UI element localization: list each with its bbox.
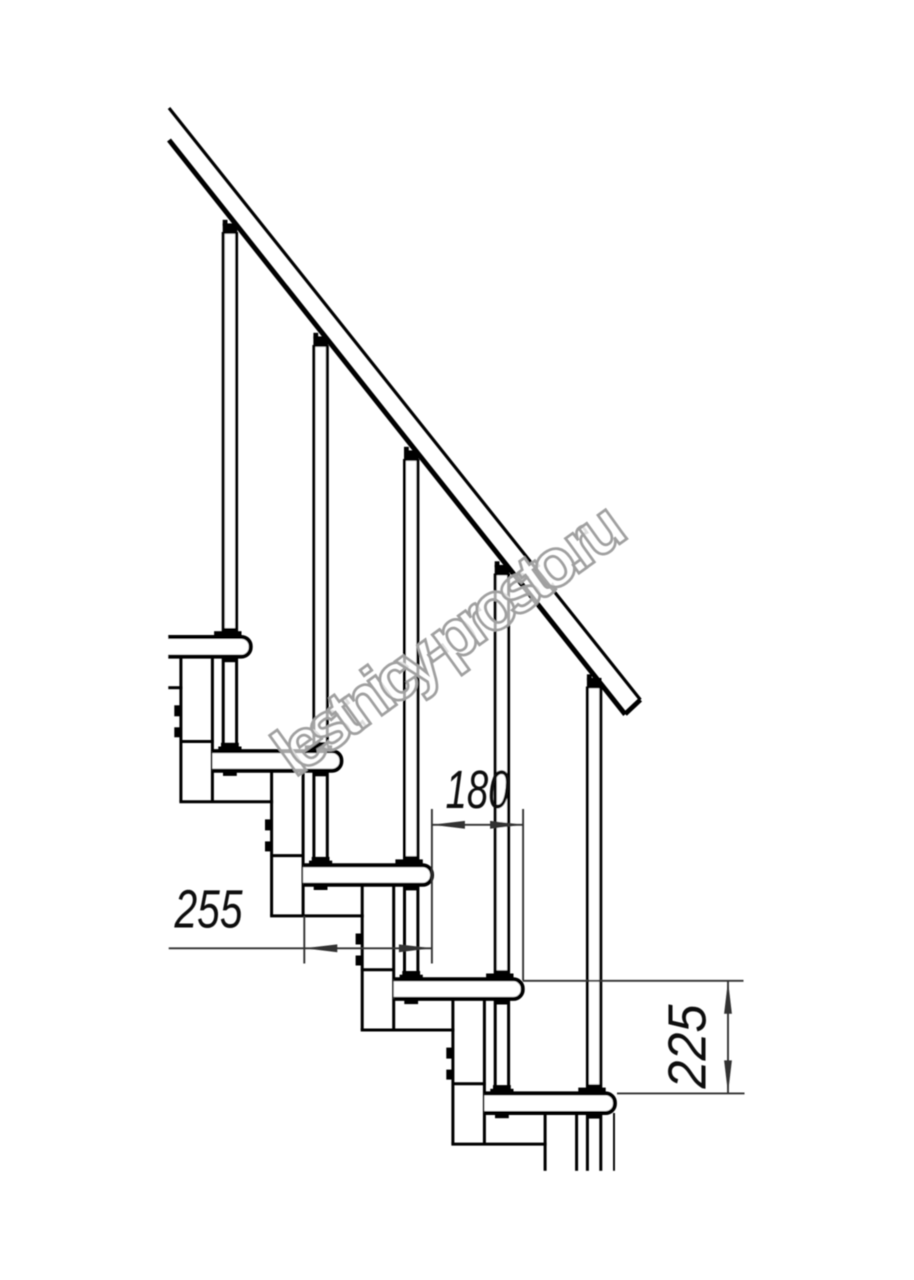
svg-text:255: 255 (174, 879, 244, 939)
svg-text:225: 225 (658, 1004, 718, 1090)
svg-text:180: 180 (445, 760, 509, 820)
